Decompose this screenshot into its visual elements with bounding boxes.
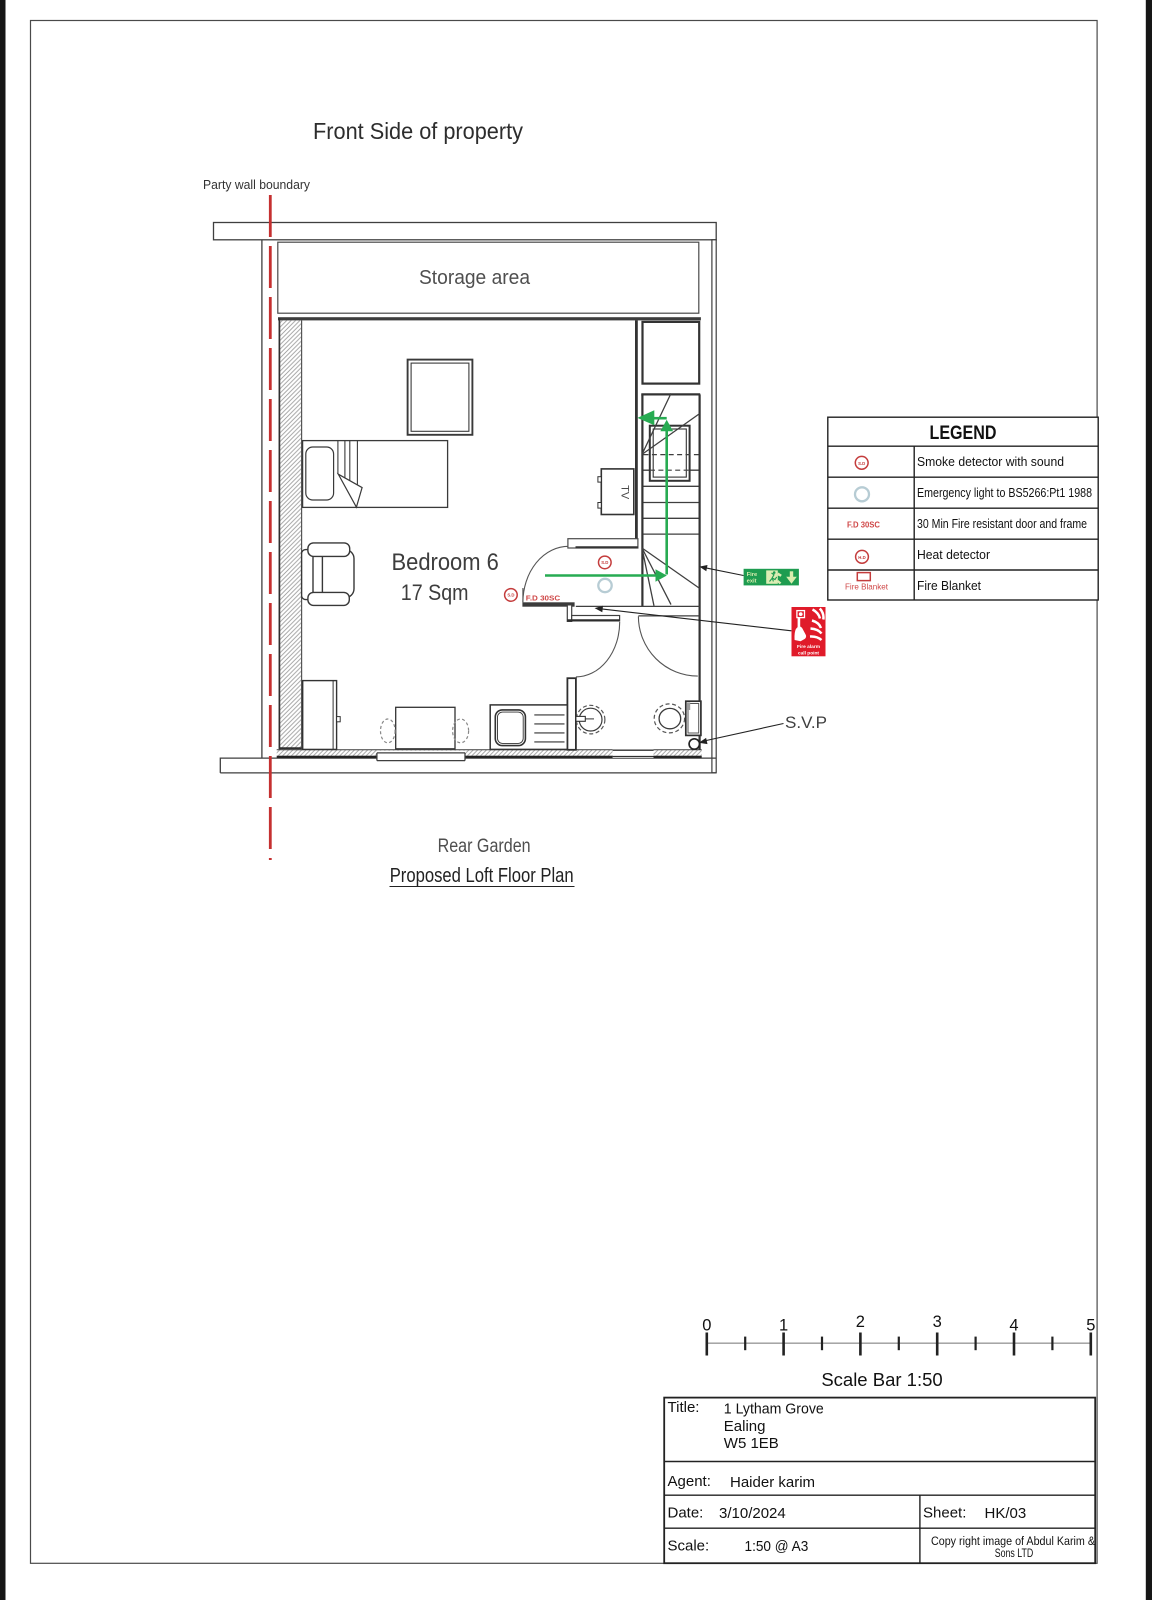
- svg-text:0: 0: [702, 1317, 711, 1335]
- svg-text:Scale Bar 1:50: Scale Bar 1:50: [821, 1369, 942, 1390]
- svg-text:1 Lytham Grove: 1 Lytham Grove: [724, 1401, 824, 1418]
- svg-text:HK/03: HK/03: [985, 1505, 1027, 1522]
- svg-text:Agent:: Agent:: [668, 1473, 711, 1490]
- svg-text:Scale:: Scale:: [668, 1538, 710, 1555]
- svg-text:W5 1EB: W5 1EB: [724, 1435, 779, 1452]
- svg-text:17 Sqm: 17 Sqm: [401, 580, 469, 605]
- svg-text:Ealing: Ealing: [724, 1418, 766, 1435]
- svg-text:1:50 @ A3: 1:50 @ A3: [745, 1538, 809, 1555]
- svg-text:exit: exit: [747, 579, 757, 585]
- svg-text:3/10/2024: 3/10/2024: [719, 1505, 786, 1522]
- svg-text:Date:: Date:: [668, 1505, 704, 1522]
- svg-text:Sheet:: Sheet:: [923, 1505, 966, 1522]
- svg-text:Party wall boundary: Party wall boundary: [203, 177, 311, 192]
- svg-text:Haider karim: Haider karim: [730, 1474, 815, 1491]
- svg-text:1: 1: [779, 1317, 788, 1335]
- svg-text:30 Min Fire resistant door and: 30 Min Fire resistant door and frame: [917, 517, 1087, 531]
- svg-text:Fire alarm: Fire alarm: [797, 644, 820, 650]
- svg-text:Fire Blanket: Fire Blanket: [917, 578, 981, 593]
- svg-text:Rear Garden: Rear Garden: [438, 836, 531, 857]
- svg-text:Proposed Loft Floor Plan: Proposed Loft Floor Plan: [390, 865, 574, 887]
- svg-text:Heat detector: Heat detector: [917, 547, 991, 562]
- svg-text:Bedroom 6: Bedroom 6: [392, 549, 499, 576]
- svg-text:call point: call point: [798, 650, 819, 656]
- svg-text:Emergency light to BS5266:Pt1: Emergency light to BS5266:Pt1 1988: [917, 486, 1092, 500]
- svg-text:4: 4: [1009, 1317, 1018, 1335]
- svg-text:Title:: Title:: [668, 1399, 700, 1416]
- svg-text:2: 2: [856, 1313, 865, 1331]
- svg-text:Storage area: Storage area: [419, 267, 531, 289]
- svg-text:S.V.P: S.V.P: [785, 713, 827, 732]
- svg-text:F.D 30SC: F.D 30SC: [847, 521, 880, 530]
- svg-text:3: 3: [933, 1313, 942, 1331]
- svg-text:Fire Blanket: Fire Blanket: [845, 582, 889, 592]
- svg-text:S.D: S.D: [601, 560, 608, 565]
- svg-text:LEGEND: LEGEND: [930, 423, 997, 444]
- svg-text:Fire: Fire: [747, 572, 758, 578]
- svg-text:TV: TV: [619, 485, 631, 500]
- svg-text:F.D 30SC: F.D 30SC: [526, 594, 560, 603]
- svg-text:Sons LTD: Sons LTD: [995, 1546, 1034, 1560]
- svg-text:H.D: H.D: [858, 555, 865, 560]
- svg-text:Front Side of property: Front Side of property: [313, 118, 523, 144]
- svg-text:5: 5: [1086, 1317, 1095, 1335]
- svg-text:S.D: S.D: [507, 593, 514, 598]
- svg-text:Smoke detector with sound: Smoke detector with sound: [917, 454, 1064, 469]
- svg-text:S.D: S.D: [858, 461, 865, 466]
